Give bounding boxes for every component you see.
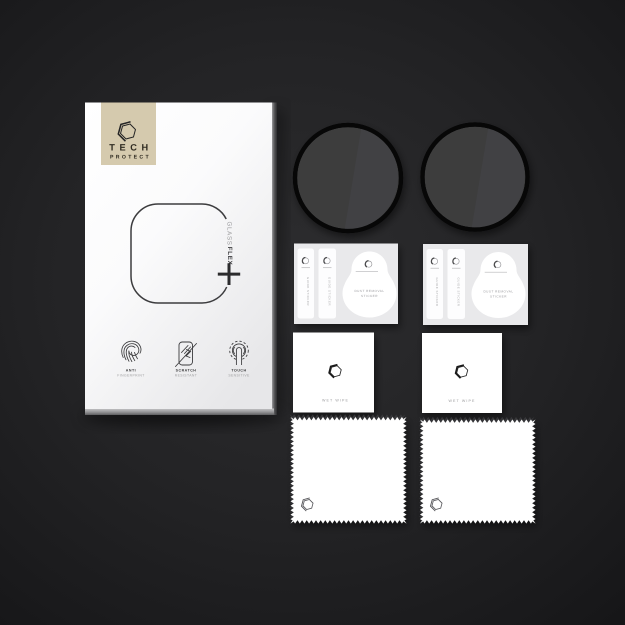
svg-text:GUIDE STICKER: GUIDE STICKER [328, 277, 332, 306]
svg-text:DUST REMOVAL: DUST REMOVAL [354, 289, 384, 293]
svg-text:TOUCH: TOUCH [231, 369, 246, 373]
svg-text:GUIDE STICKER: GUIDE STICKER [306, 277, 310, 306]
svg-text:TECH: TECH [109, 143, 152, 153]
svg-text:PROTECT: PROTECT [110, 155, 151, 161]
svg-text:ANTI: ANTI [126, 369, 136, 373]
svg-text:SCRATCH: SCRATCH [176, 369, 197, 373]
svg-text:FLEX: FLEX [226, 247, 233, 266]
svg-text:RESISTANT: RESISTANT [175, 374, 197, 378]
svg-text:GUIDE STICKER: GUIDE STICKER [457, 278, 461, 307]
svg-text:DUST REMOVAL: DUST REMOVAL [483, 290, 513, 294]
svg-text:STICKER: STICKER [490, 295, 507, 299]
svg-text:STICKER: STICKER [361, 294, 378, 298]
svg-text:WET WIPE: WET WIPE [322, 399, 349, 403]
svg-text:SENSITIVE: SENSITIVE [228, 374, 250, 378]
svg-text:WET WIPE: WET WIPE [449, 399, 476, 403]
svg-text:FINGERPRINT: FINGERPRINT [117, 374, 144, 378]
svg-text:GUIDE STICKER: GUIDE STICKER [435, 278, 439, 307]
svg-text:GLASS: GLASS [226, 222, 233, 246]
